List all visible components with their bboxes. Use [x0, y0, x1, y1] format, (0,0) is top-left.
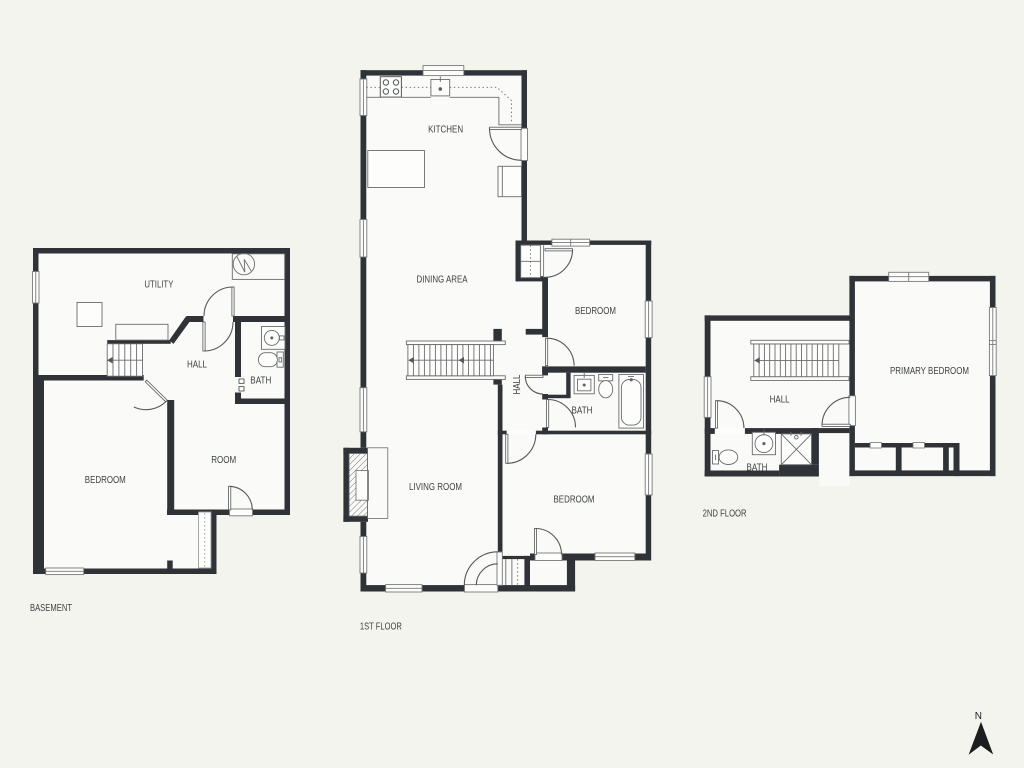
svg-text:1ST FLOOR: 1ST FLOOR [360, 622, 402, 633]
svg-text:BEDROOM: BEDROOM [575, 306, 616, 317]
svg-text:N: N [975, 711, 982, 722]
svg-text:2ND FLOOR: 2ND FLOOR [703, 509, 747, 520]
svg-text:BATH: BATH [572, 405, 593, 416]
svg-text:HALL: HALL [512, 374, 523, 394]
svg-text:LIVING ROOM: LIVING ROOM [409, 482, 462, 493]
svg-text:UTILITY: UTILITY [144, 280, 173, 291]
svg-text:PRIMARY BEDROOM: PRIMARY BEDROOM [890, 366, 969, 377]
svg-text:HALL: HALL [187, 360, 207, 371]
svg-text:HALL: HALL [770, 395, 790, 406]
svg-text:KITCHEN: KITCHEN [428, 125, 463, 136]
svg-text:DINING AREA: DINING AREA [417, 275, 468, 286]
svg-text:BATH: BATH [747, 463, 768, 474]
svg-text:BEDROOM: BEDROOM [554, 494, 595, 505]
svg-text:ROOM: ROOM [211, 455, 236, 466]
svg-text:BEDROOM: BEDROOM [85, 475, 126, 486]
svg-text:BATH: BATH [250, 376, 271, 387]
svg-text:BASEMENT: BASEMENT [30, 603, 72, 614]
